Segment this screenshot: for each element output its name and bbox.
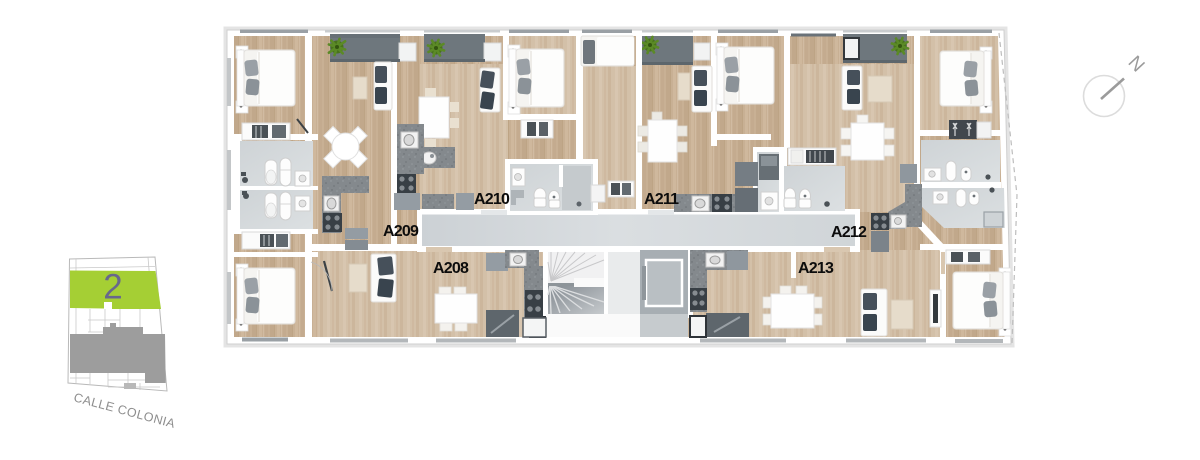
svg-text:2: 2 [103, 268, 122, 307]
svg-text:A213: A213 [798, 260, 834, 277]
svg-text:A209: A209 [383, 223, 419, 240]
svg-text:A212: A212 [831, 224, 867, 241]
svg-text:A211: A211 [644, 191, 679, 208]
svg-text:A210: A210 [474, 191, 510, 208]
svg-text:A208: A208 [433, 260, 469, 277]
